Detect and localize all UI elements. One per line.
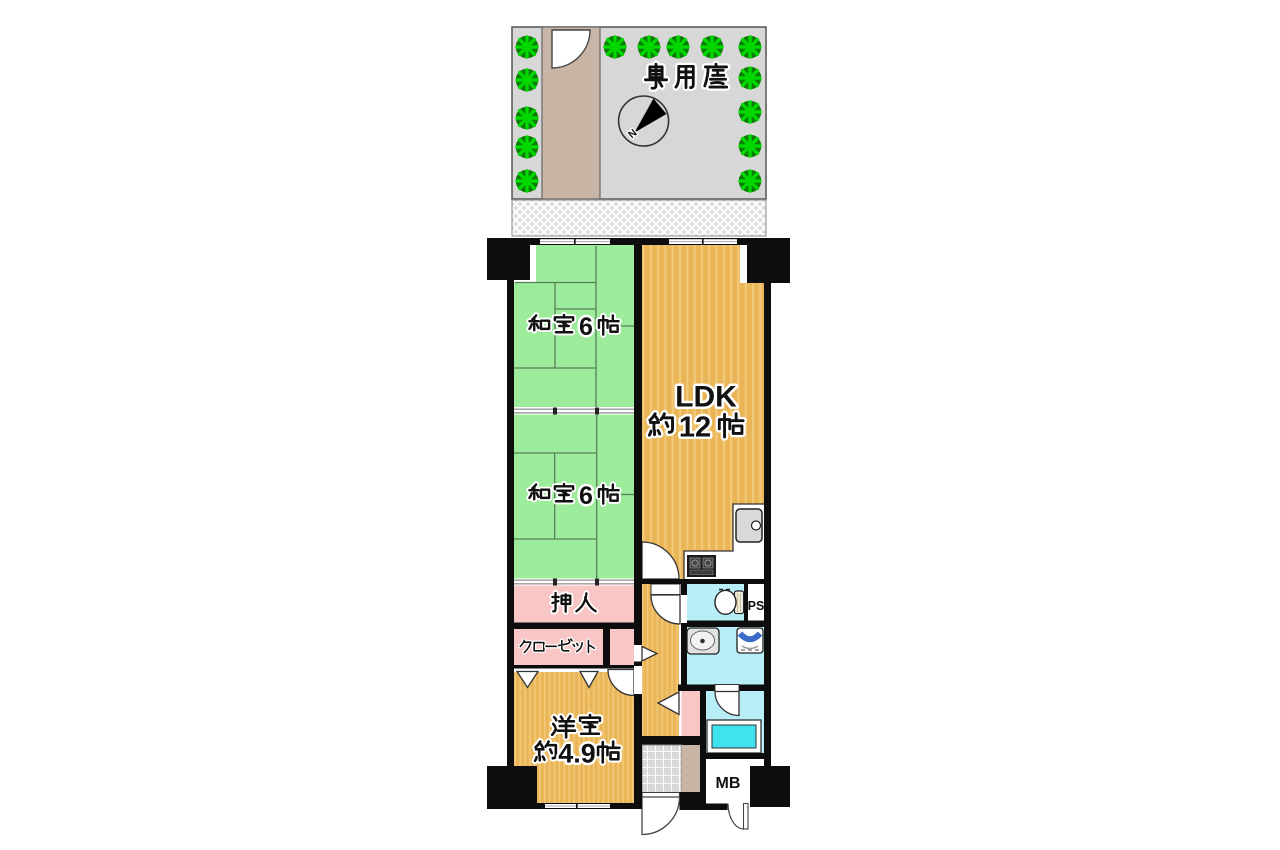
- svg-text:LDK: LDK: [675, 381, 737, 414]
- svg-text:6: 6: [579, 482, 593, 510]
- svg-text:MB: MB: [716, 775, 741, 792]
- svg-text:12: 12: [679, 412, 711, 444]
- svg-text:6: 6: [579, 313, 593, 341]
- svg-text:PS: PS: [748, 599, 765, 613]
- svg-text:4.9: 4.9: [558, 739, 596, 769]
